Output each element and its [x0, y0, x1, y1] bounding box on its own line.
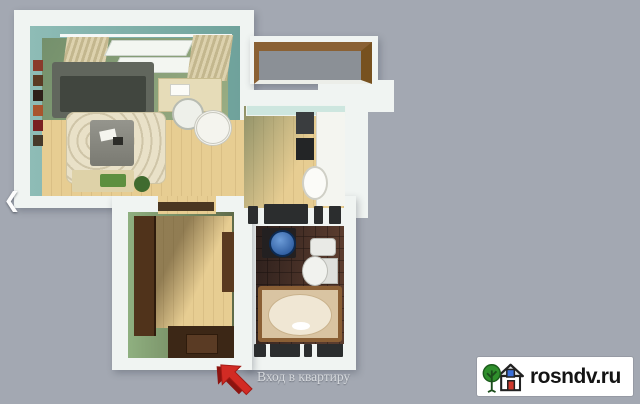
wall-opening	[270, 342, 300, 357]
watermark-site-text: rosndv.ru	[530, 365, 621, 389]
watermark-logo	[482, 361, 526, 393]
wall-opening	[254, 344, 266, 357]
kitchen-sink	[302, 166, 328, 200]
house-icon	[498, 364, 522, 389]
wall-opening	[314, 206, 323, 224]
curtain-right	[187, 35, 233, 81]
coffee-table	[90, 120, 134, 166]
carousel-prev-button[interactable]: ❮	[2, 188, 22, 214]
entrance-label: Вход в квартиру	[257, 369, 350, 385]
door-mat	[186, 334, 218, 354]
table-item	[113, 137, 123, 145]
tree-icon	[483, 364, 500, 391]
hallway-floor-shadow	[154, 216, 232, 328]
bathroom-sink	[310, 238, 336, 256]
screenshot-root: ❮ Вход в квартиру rosndv.ru	[0, 0, 640, 404]
watermark: rosndv.ru	[477, 357, 633, 396]
doorway-lintel	[158, 202, 214, 211]
wall-opening	[304, 344, 312, 357]
wall-opening	[248, 206, 258, 224]
window-pane	[104, 40, 194, 56]
bathtub-fitting	[292, 322, 310, 330]
chevron-left-icon: ❮	[3, 189, 21, 212]
balcony-railing-and-floor	[254, 42, 372, 84]
stove	[296, 138, 314, 160]
plant	[134, 176, 150, 192]
washing-machine-lid	[269, 230, 296, 257]
wall-opening	[329, 206, 341, 224]
wall-opening	[264, 204, 308, 224]
bench-cushion	[100, 174, 126, 187]
wardrobe-door	[134, 216, 156, 336]
toilet	[302, 256, 328, 286]
round-table	[194, 110, 232, 146]
bathroom-door	[222, 232, 234, 292]
desk-computer	[170, 84, 190, 96]
sofa-seat	[60, 76, 146, 112]
wall-picture-frames	[31, 60, 45, 156]
fridge	[296, 112, 314, 134]
